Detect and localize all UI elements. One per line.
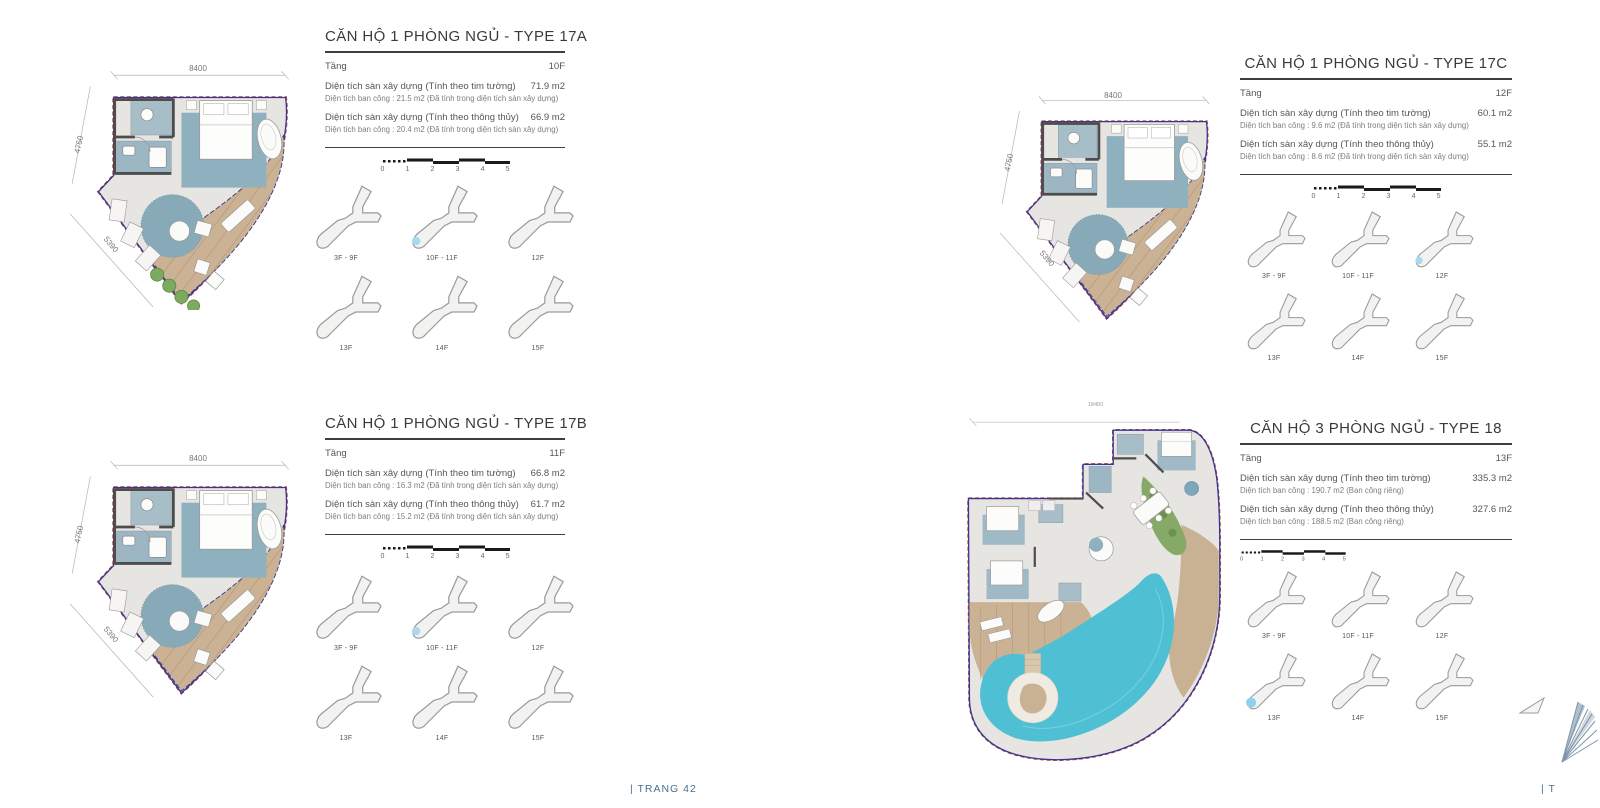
floor-diagram-cell: 12F xyxy=(498,574,578,652)
balcony-note: Diện tích ban công : 9.6 m2 (Đã tính tro… xyxy=(1240,121,1512,130)
floor-range-label: 14F xyxy=(1352,355,1365,362)
balcony-note: Diện tích ban công : 188.5 m2 (Ban công … xyxy=(1240,517,1512,526)
scale-tick: 2 xyxy=(431,553,435,560)
scale-tick: 4 xyxy=(481,553,485,560)
scale-bar: 0 1 2 3 4 5 xyxy=(325,544,565,560)
floor-range-label: 14F xyxy=(436,735,449,742)
floor-diagram-cell: 15F xyxy=(1407,292,1477,362)
floor-diagram-cell: 10F - 11F xyxy=(1323,210,1393,280)
floor-diagram-cell: 15F xyxy=(498,274,578,352)
divider xyxy=(1240,539,1512,540)
building-outline-icon xyxy=(1239,292,1309,354)
floor-label: Tầng xyxy=(325,448,347,459)
balcony-note: Diện tích ban công : 190.7 m2 (Ban công … xyxy=(1240,486,1512,495)
building-outline-icon xyxy=(1323,570,1393,632)
floor-range-label: 12F xyxy=(532,255,545,262)
floor-range-label: 15F xyxy=(1436,715,1449,722)
area-label: Diện tích sàn xây dựng (Tính theo tim tư… xyxy=(325,81,516,92)
floor-location-grid: 3F - 9F 10F - 11F 12F 13F 14F 15F xyxy=(1232,570,1484,722)
building-outline-icon xyxy=(402,664,482,734)
scale-tick: 5 xyxy=(1437,193,1441,200)
scale-tick: 0 xyxy=(1240,556,1243,562)
floor-range-label: 10F - 11F xyxy=(1342,273,1374,280)
building-outline-icon xyxy=(1239,570,1309,632)
building-outline-icon xyxy=(1239,210,1309,272)
floor-location-grid: 3F - 9F 10F - 11F 12F 13F 14F 15F xyxy=(298,184,586,352)
scale-tick: 1 xyxy=(406,166,410,173)
floor-value: 10F xyxy=(549,61,565,72)
scale-tick: 5 xyxy=(506,166,510,173)
building-outline-icon xyxy=(306,664,386,734)
scale-tick: 5 xyxy=(506,553,510,560)
floor-diagram-cell: 10F - 11F xyxy=(402,574,482,652)
building-outline-icon xyxy=(1323,652,1393,714)
brand-fan-logo-icon xyxy=(1552,700,1600,778)
unit-info-type-18: CĂN HỘ 3 PHÒNG NGỦ - TYPE 18 Tầng 13F Di… xyxy=(1240,420,1512,565)
divider xyxy=(325,534,565,535)
unit-info-type-17a: CĂN HỘ 1 PHÒNG NGỦ - TYPE 17A Tầng 10F D… xyxy=(325,28,565,173)
area-value: 327.6 m2 xyxy=(1472,504,1512,515)
scale-tick: 2 xyxy=(431,166,435,173)
brochure-page: 8400 4750 5390 CĂN HỘ 1 PHÒNG NGỦ - TYPE… xyxy=(0,0,1600,808)
building-outline-icon xyxy=(1239,652,1309,714)
floor-plan-type-17b xyxy=(68,442,306,700)
floor-range-label: 15F xyxy=(532,345,545,352)
floor-diagram-cell: 14F xyxy=(1323,292,1393,362)
scale-tick: 2 xyxy=(1362,193,1366,200)
floor-value: 13F xyxy=(1496,453,1512,464)
floor-diagram-cell: 10F - 11F xyxy=(1323,570,1393,640)
building-outline-icon xyxy=(1323,292,1393,354)
floor-diagram-cell: 13F xyxy=(1239,652,1309,722)
floor-range-label: 13F xyxy=(1268,355,1281,362)
floor-range-label: 15F xyxy=(1436,355,1449,362)
floor-label: Tầng xyxy=(325,61,347,72)
floor-diagram-cell: 14F xyxy=(402,274,482,352)
floor-plan-type-17a xyxy=(68,52,306,310)
dimension-top: 18450 xyxy=(1088,402,1103,408)
scale-tick: 5 xyxy=(1343,556,1346,562)
floor-diagram-cell: 15F xyxy=(1407,652,1477,722)
unit-info-type-17b: CĂN HỘ 1 PHÒNG NGỦ - TYPE 17B Tầng 11F D… xyxy=(325,415,565,560)
area-value: 60.1 m2 xyxy=(1478,108,1512,119)
panel-title: CĂN HỘ 1 PHÒNG NGỦ - TYPE 17A xyxy=(325,28,565,53)
building-outline-icon xyxy=(1407,570,1477,632)
floor-diagram-cell: 14F xyxy=(1323,652,1393,722)
area-label: Diện tích sàn xây dựng (Tính theo thông … xyxy=(325,499,519,510)
balcony-note: Diện tích ban công : 16.3 m2 (Đã tính tr… xyxy=(325,481,565,490)
dimension-top: 8400 xyxy=(176,64,220,73)
area-value: 66.9 m2 xyxy=(531,112,565,123)
floor-plan-type-18 xyxy=(930,396,1222,768)
balcony-note: Diện tích ban công : 20.4 m2 (Đã tính tr… xyxy=(325,125,565,134)
building-outline-icon xyxy=(498,184,578,254)
scale-tick: 4 xyxy=(1322,556,1325,562)
area-value: 71.9 m2 xyxy=(531,81,565,92)
area-label: Diện tích sàn xây dựng (Tính theo tim tư… xyxy=(325,468,516,479)
floor-diagram-cell: 15F xyxy=(498,664,578,742)
floor-label: Tầng xyxy=(1240,453,1262,464)
panel-title: CĂN HỘ 3 PHÒNG NGỦ - TYPE 18 xyxy=(1240,420,1512,445)
scale-bar: 0 1 2 3 4 5 xyxy=(1240,549,1463,562)
floor-diagram-cell: 12F xyxy=(1407,570,1477,640)
scale-bar: 0 1 2 3 4 5 xyxy=(1240,184,1512,200)
scale-bar-graphic xyxy=(381,157,510,165)
building-outline-icon xyxy=(402,274,482,344)
floor-diagram-cell: 12F xyxy=(498,184,578,262)
floor-location-grid: 3F - 9F 10F - 11F 12F 13F 14F 15F xyxy=(1232,210,1484,362)
panel-title: CĂN HỘ 1 PHÒNG NGỦ - TYPE 17B xyxy=(325,415,565,440)
area-label: Diện tích sàn xây dựng (Tính theo thông … xyxy=(1240,504,1434,515)
unit-info-type-17c: CĂN HỘ 1 PHÒNG NGỦ - TYPE 17C Tầng 12F D… xyxy=(1240,55,1512,200)
floor-range-label: 3F - 9F xyxy=(334,645,358,652)
building-outline-icon xyxy=(1323,210,1393,272)
building-outline-icon xyxy=(306,184,386,254)
floor-range-label: 13F xyxy=(1268,715,1281,722)
scale-tick: 1 xyxy=(1337,193,1341,200)
adjacent-diagram-fragment-icon xyxy=(1518,696,1548,716)
building-outline-icon xyxy=(498,274,578,344)
floor-range-label: 10F - 11F xyxy=(1342,633,1374,640)
balcony-note: Diện tích ban công : 15.2 m2 (Đã tính tr… xyxy=(325,512,565,521)
scale-tick: 0 xyxy=(381,553,385,560)
scale-tick: 0 xyxy=(381,166,385,173)
floor-label: Tầng xyxy=(1240,88,1262,99)
scale-tick: 4 xyxy=(1412,193,1416,200)
area-label: Diện tích sàn xây dựng (Tính theo thông … xyxy=(325,112,519,123)
floor-diagram-cell: 13F xyxy=(306,274,386,352)
building-outline-icon xyxy=(1407,652,1477,714)
building-outline-icon xyxy=(1407,210,1477,272)
floor-range-label: 14F xyxy=(1352,715,1365,722)
area-label: Diện tích sàn xây dựng (Tính theo tim tư… xyxy=(1240,108,1431,119)
divider xyxy=(325,147,565,148)
panel-title: CĂN HỘ 1 PHÒNG NGỦ - TYPE 17C xyxy=(1240,55,1512,80)
scale-bar-graphic xyxy=(1240,549,1346,556)
floor-value: 11F xyxy=(549,448,565,459)
building-outline-icon xyxy=(498,664,578,734)
scale-bar-graphic xyxy=(381,544,510,552)
balcony-note: Diện tích ban công : 21.5 m2 (Đã tính tr… xyxy=(325,94,565,103)
scale-tick: 4 xyxy=(481,166,485,173)
scale-bar-graphic xyxy=(1312,184,1441,192)
floor-range-label: 12F xyxy=(1436,273,1449,280)
floor-range-label: 13F xyxy=(340,345,353,352)
scale-tick: 3 xyxy=(456,553,460,560)
floor-range-label: 13F xyxy=(340,735,353,742)
scale-tick: 1 xyxy=(1261,556,1264,562)
building-outline-icon xyxy=(306,574,386,644)
page-number-right: | T xyxy=(1541,783,1556,795)
area-value: 66.8 m2 xyxy=(531,468,565,479)
scale-tick: 2 xyxy=(1281,556,1284,562)
area-value: 61.7 m2 xyxy=(531,499,565,510)
building-outline-icon xyxy=(306,274,386,344)
area-value: 55.1 m2 xyxy=(1478,139,1512,150)
area-value: 335.3 m2 xyxy=(1472,473,1512,484)
scale-tick: 3 xyxy=(1302,556,1305,562)
floor-diagram-cell: 10F - 11F xyxy=(402,184,482,262)
building-outline-icon xyxy=(402,574,482,644)
floor-diagram-cell: 3F - 9F xyxy=(306,574,386,652)
area-label: Diện tích sàn xây dựng (Tính theo thông … xyxy=(1240,139,1434,150)
area-label: Diện tích sàn xây dựng (Tính theo tim tư… xyxy=(1240,473,1431,484)
scale-tick: 3 xyxy=(456,166,460,173)
floor-range-label: 10F - 11F xyxy=(426,645,458,652)
floor-diagram-cell: 3F - 9F xyxy=(306,184,386,262)
floor-range-label: 10F - 11F xyxy=(426,255,458,262)
floor-diagram-cell: 14F xyxy=(402,664,482,742)
floor-range-label: 14F xyxy=(436,345,449,352)
scale-tick: 3 xyxy=(1387,193,1391,200)
floor-range-label: 3F - 9F xyxy=(1262,633,1286,640)
floor-range-label: 3F - 9F xyxy=(1262,273,1286,280)
balcony-note: Diện tích ban công : 8.6 m2 (Đã tính tro… xyxy=(1240,152,1512,161)
dimension-top: 8400 xyxy=(176,454,220,463)
floor-range-label: 15F xyxy=(532,735,545,742)
building-outline-icon xyxy=(402,184,482,254)
floor-diagram-cell: 3F - 9F xyxy=(1239,210,1309,280)
floor-diagram-cell: 3F - 9F xyxy=(1239,570,1309,640)
floor-value: 12F xyxy=(1496,88,1512,99)
floor-diagram-cell: 13F xyxy=(306,664,386,742)
building-outline-icon xyxy=(498,574,578,644)
floor-range-label: 12F xyxy=(1436,633,1449,640)
dimension-top: 8400 xyxy=(1091,91,1135,100)
floor-range-label: 3F - 9F xyxy=(334,255,358,262)
scale-tick: 0 xyxy=(1312,193,1316,200)
floor-location-grid: 3F - 9F 10F - 11F 12F 13F 14F 15F xyxy=(298,574,586,742)
floor-diagram-cell: 12F xyxy=(1407,210,1477,280)
floor-range-label: 12F xyxy=(532,645,545,652)
divider xyxy=(1240,174,1512,175)
page-number: | TRANG 42 xyxy=(630,783,697,795)
building-outline-icon xyxy=(1407,292,1477,354)
scale-bar: 0 1 2 3 4 5 xyxy=(325,157,565,173)
floor-diagram-cell: 13F xyxy=(1239,292,1309,362)
scale-tick: 1 xyxy=(406,553,410,560)
floor-plan-type-17c xyxy=(998,78,1226,325)
